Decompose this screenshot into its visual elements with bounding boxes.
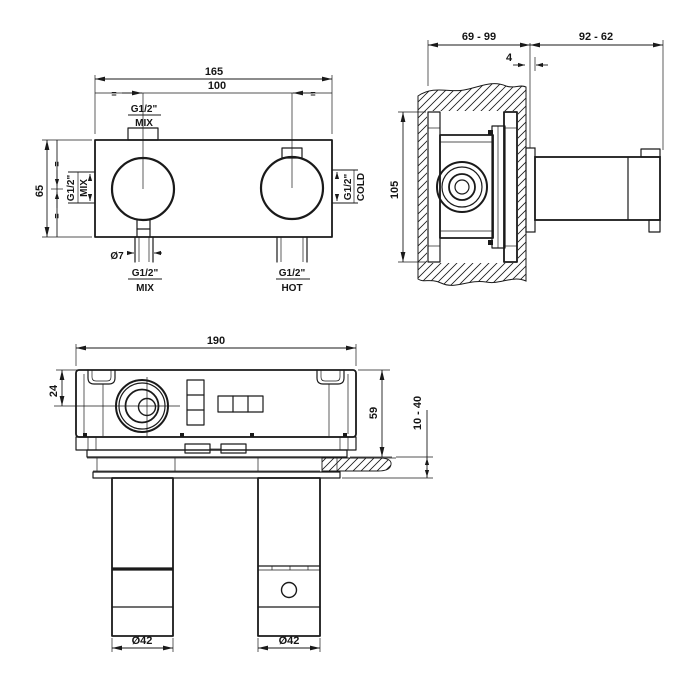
port-right-name-label: COLD [356, 173, 367, 201]
dim-body-height-label: 105 [389, 181, 401, 199]
port-top-name-label: MIX [135, 118, 153, 129]
dim-recess-depth-label: 69 - 99 [462, 31, 496, 43]
mounting-screw [250, 433, 254, 437]
mounting-screw [343, 433, 347, 437]
port-left-name-label: MIX [79, 179, 90, 197]
escutcheon-plate [526, 148, 535, 232]
tile-section-hatch [322, 458, 391, 471]
handle-bottom-tab [649, 220, 660, 232]
dim-handle-right-label: Ø42 [279, 635, 300, 647]
equal-mark: = [52, 161, 62, 166]
dim-handle-left-label: Ø42 [132, 635, 153, 647]
dim-plate-thickness-label: 4 [506, 52, 513, 64]
dim-box-width-label: 190 [207, 335, 225, 347]
dim-port-spacing-label: 100 [208, 80, 226, 92]
dim-body-depth-label: 59 [368, 407, 380, 419]
dim-overall-width-label: 165 [205, 66, 223, 78]
port-right-thread-label: G1/2" [343, 174, 354, 201]
mixer-body-front [95, 140, 332, 237]
equal-mark: = [310, 89, 315, 99]
handle-button [282, 583, 297, 598]
dim-wall-thickness-label: 10 - 40 [412, 396, 424, 430]
fixing-screw-top [488, 130, 493, 135]
side-view: 69 - 99 92 - 62 4 105 [389, 31, 663, 285]
rough-in-box [76, 370, 356, 437]
box-flange [76, 437, 356, 450]
equal-mark: = [111, 89, 116, 99]
terminal-block-horizontal [218, 396, 263, 412]
dim-center-offset-label: 24 [48, 384, 60, 397]
mixer-installation-drawing: 165 100 = = G1/2" MIX 65 = = [0, 0, 700, 700]
rough-plate [87, 450, 347, 457]
fixing-screw-bottom [488, 240, 493, 245]
handle-top-tab [641, 149, 660, 157]
port-bottom-left-thread-label: G1/2" [132, 268, 159, 279]
mounting-screw [83, 433, 87, 437]
plan-view: 190 24 [48, 335, 433, 652]
dim-height-label: 65 [34, 185, 46, 197]
port-bottom-left-name-label: MIX [136, 283, 154, 294]
terminal-block-vertical [187, 380, 204, 425]
front-view: 165 100 = = G1/2" MIX 65 = = [34, 66, 367, 294]
technical-drawing-page: 165 100 = = G1/2" MIX 65 = = [0, 0, 700, 700]
equal-mark: = [52, 213, 62, 218]
dim-projection-label: 92 - 62 [579, 31, 613, 43]
flange-tab-right [221, 444, 246, 453]
dim-pilot-hole-label: Ø7 [110, 251, 124, 262]
port-bottom-right-thread-label: G1/2" [279, 268, 306, 279]
handle-cylinder-right [258, 478, 320, 636]
flange-tab-left [185, 444, 210, 453]
handle-cylinder-side [535, 157, 660, 220]
port-left-thread-label: G1/2" [66, 175, 77, 202]
handle-cylinder-left [112, 478, 173, 636]
mounting-screw [180, 433, 184, 437]
port-bottom-right-name-label: HOT [281, 283, 302, 294]
port-top-thread-label: G1/2" [131, 104, 158, 115]
